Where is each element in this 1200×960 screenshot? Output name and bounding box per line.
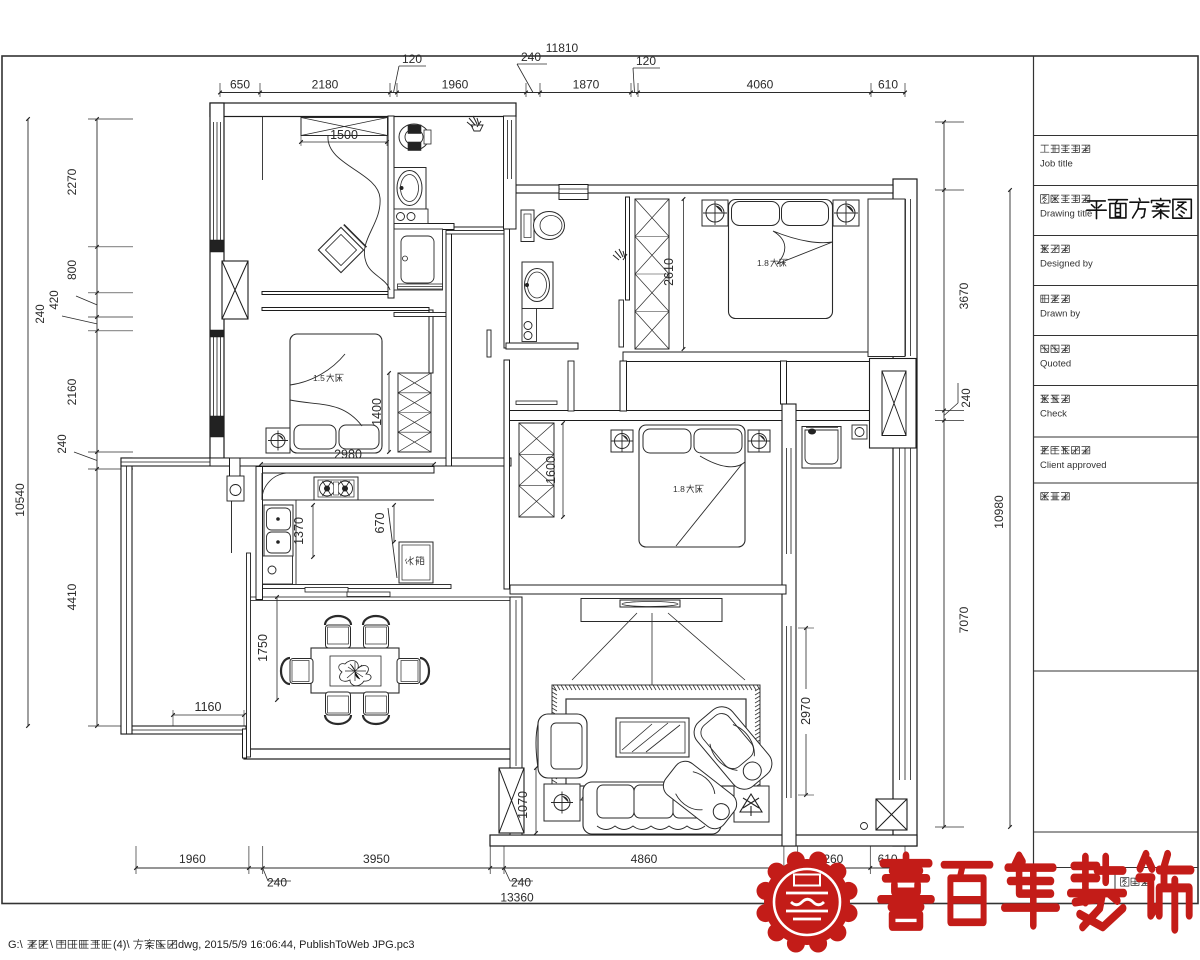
svg-text:G:\: G:\	[8, 939, 24, 951]
svg-text:10540: 10540	[13, 483, 27, 517]
svg-text:1960: 1960	[179, 852, 206, 866]
svg-text:1960: 1960	[442, 78, 469, 92]
svg-text:Check: Check	[1040, 409, 1067, 420]
svg-text:240: 240	[267, 876, 287, 890]
svg-text:Drawn by: Drawn by	[1040, 309, 1080, 320]
svg-text:2610: 2610	[662, 258, 676, 286]
svg-text:7070: 7070	[957, 606, 971, 633]
svg-text:2270: 2270	[65, 168, 79, 195]
svg-text:1500: 1500	[330, 128, 358, 142]
svg-text:670: 670	[373, 513, 387, 534]
svg-text:610: 610	[878, 78, 898, 92]
svg-text:1.8: 1.8	[757, 258, 769, 268]
svg-text:1400: 1400	[370, 398, 384, 426]
svg-text:240: 240	[521, 50, 541, 64]
svg-text:1070: 1070	[516, 791, 530, 819]
svg-text:650: 650	[230, 78, 250, 92]
svg-text:Drawing title: Drawing title	[1040, 209, 1092, 220]
svg-text:800: 800	[65, 260, 79, 280]
svg-text:.dwg, 2015/5/9 16:06:44, Publi: .dwg, 2015/5/9 16:06:44, PublishToWeb JP…	[175, 939, 415, 951]
svg-text:1.8: 1.8	[673, 484, 685, 494]
svg-text:240: 240	[57, 434, 69, 453]
svg-text:2180: 2180	[312, 78, 339, 92]
svg-text:2970: 2970	[799, 697, 813, 725]
svg-text:1160: 1160	[195, 700, 222, 714]
svg-text:Quoted: Quoted	[1040, 359, 1071, 370]
svg-text:240: 240	[35, 304, 47, 323]
svg-text:120: 120	[402, 52, 422, 66]
svg-text:240: 240	[511, 876, 531, 890]
svg-text:1750: 1750	[256, 634, 270, 662]
svg-text:2160: 2160	[65, 378, 79, 405]
svg-text:1600: 1600	[544, 456, 558, 484]
svg-text:240: 240	[961, 388, 973, 407]
svg-text:10980: 10980	[992, 495, 1006, 529]
svg-text:Designed by: Designed by	[1040, 259, 1093, 270]
svg-text:(4)\: (4)\	[113, 939, 130, 951]
svg-text:420: 420	[49, 290, 61, 309]
svg-text:4060: 4060	[747, 78, 774, 92]
svg-text:4410: 4410	[65, 583, 79, 610]
svg-text:4860: 4860	[631, 852, 658, 866]
svg-text:11810: 11810	[546, 41, 579, 55]
svg-text:3950: 3950	[363, 852, 390, 866]
svg-text:2980: 2980	[334, 448, 362, 462]
svg-text:1.5: 1.5	[313, 373, 325, 383]
svg-text:13360: 13360	[500, 891, 534, 905]
svg-text:1370: 1370	[292, 517, 306, 545]
svg-text:120: 120	[636, 54, 656, 68]
svg-text:Client approved: Client approved	[1040, 460, 1107, 471]
svg-text:1870: 1870	[573, 78, 600, 92]
svg-text:Job title: Job title	[1040, 159, 1073, 170]
svg-text:3670: 3670	[957, 282, 971, 309]
